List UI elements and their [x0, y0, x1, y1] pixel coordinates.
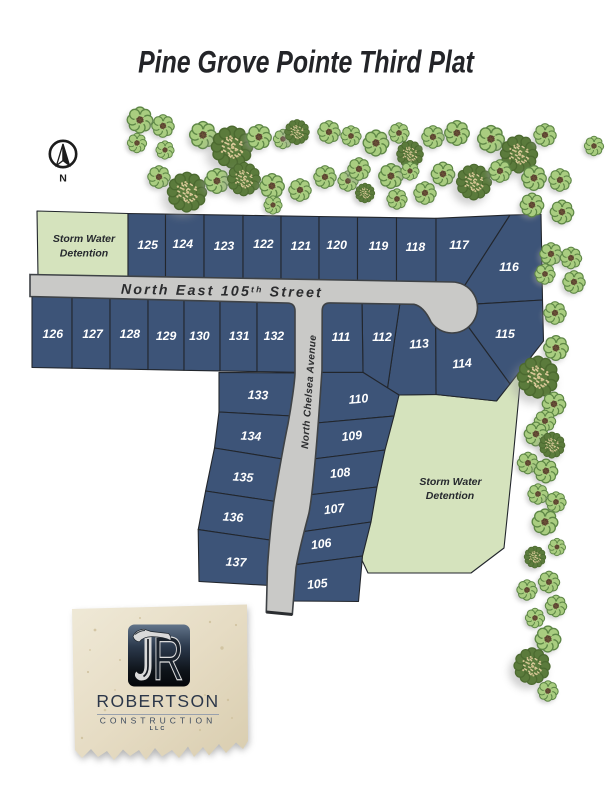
svg-text:109: 109 [341, 428, 363, 444]
svg-text:131: 131 [229, 329, 250, 343]
svg-text:112: 112 [372, 330, 392, 344]
svg-text:Storm Water: Storm Water [53, 233, 116, 245]
svg-text:132: 132 [264, 329, 285, 343]
svg-text:118: 118 [406, 240, 426, 254]
svg-text:Storm Water: Storm Water [419, 476, 482, 488]
svg-text:126: 126 [43, 327, 64, 341]
svg-text:134: 134 [240, 429, 261, 444]
svg-text:105: 105 [306, 576, 328, 592]
svg-text:N: N [59, 173, 67, 185]
svg-text:121: 121 [291, 239, 312, 253]
svg-text:115: 115 [495, 327, 515, 341]
svg-text:Detention: Detention [426, 490, 474, 502]
svg-text:ROBERTSON: ROBERTSON [96, 691, 219, 711]
svg-text:116: 116 [499, 260, 519, 274]
svg-text:CONSTRUCTION: CONSTRUCTION [100, 716, 216, 726]
svg-text:123: 123 [214, 239, 235, 253]
svg-text:127: 127 [82, 327, 104, 341]
svg-text:106: 106 [310, 536, 332, 552]
svg-text:Pine Grove Pointe Third Plat: Pine Grove Pointe Third Plat [138, 45, 475, 81]
svg-text:129: 129 [156, 329, 177, 343]
svg-text:133: 133 [247, 388, 268, 403]
svg-text:110: 110 [348, 391, 369, 407]
svg-text:LLC: LLC [150, 726, 167, 732]
svg-text:125: 125 [137, 238, 158, 252]
svg-text:128: 128 [120, 327, 141, 341]
svg-text:136: 136 [222, 510, 244, 525]
svg-text:Detention: Detention [60, 248, 108, 260]
svg-text:107: 107 [323, 501, 346, 518]
svg-text:137: 137 [225, 555, 247, 570]
svg-text:122: 122 [253, 237, 274, 251]
svg-text:120: 120 [326, 238, 347, 252]
svg-text:119: 119 [369, 239, 389, 253]
svg-text:124: 124 [173, 237, 194, 251]
svg-text:114: 114 [452, 356, 473, 372]
svg-text:117: 117 [449, 238, 470, 252]
svg-text:130: 130 [189, 329, 210, 343]
svg-text:108: 108 [329, 465, 351, 481]
svg-text:135: 135 [232, 470, 254, 485]
svg-text:111: 111 [332, 330, 351, 344]
svg-text:113: 113 [409, 336, 430, 351]
